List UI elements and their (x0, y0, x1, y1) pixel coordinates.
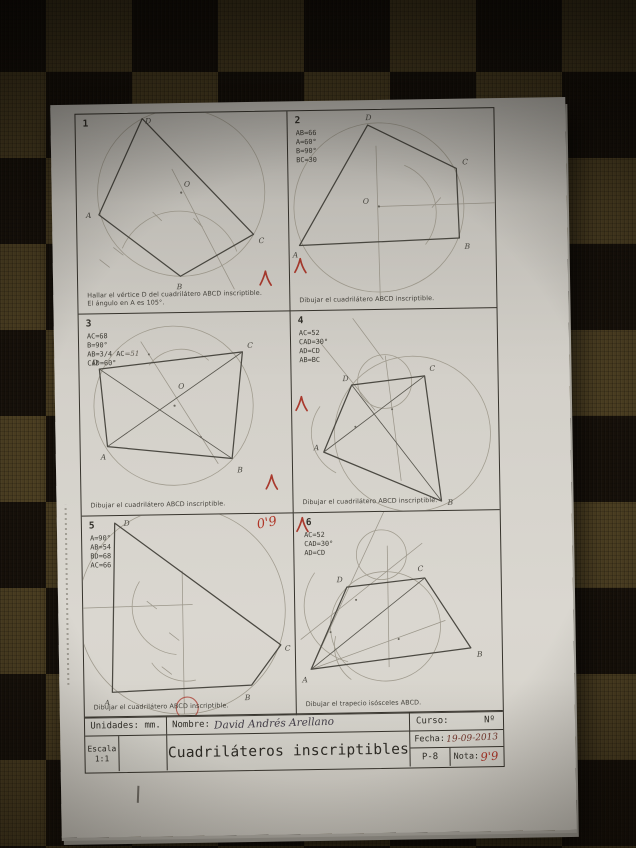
name-cell: Nombre: David Andrés Arellano (167, 713, 410, 735)
panel-instruction: Hallar el vértice D del cuadrilátero ABC… (87, 288, 285, 308)
vertex-label-D: D (336, 575, 343, 584)
vertex-label-C: C (259, 236, 265, 245)
vertex-label-D: D (123, 519, 130, 528)
panel-number: 2 (294, 115, 300, 126)
center-label-O: O (184, 180, 190, 189)
photo-of-worksheet: { "colors":{"paper":"#d6d3cc","ink":"#33… (0, 0, 636, 848)
exercise-panel-2: 2 AB=66 A=60° B=90° BC=30 D A (287, 108, 496, 311)
vertex-label-D: D (144, 116, 151, 125)
vertex-label-A: A (301, 675, 308, 684)
geometry-drawing-1: D A B C O (75, 111, 289, 313)
exercise-panel-1: 1 D A B C O Hallar el vértice D del cuad… (75, 111, 290, 314)
vertex-label-B: B (463, 242, 470, 251)
grade-check-mark (296, 516, 309, 533)
worksheet-paper: 1 D A B C O Hallar el vértice D del cuad… (50, 97, 576, 838)
student-name-handwriting: David Andrés Arellano (214, 716, 334, 732)
center-label-O: O (363, 197, 369, 206)
vertex-label-A: A (100, 453, 107, 462)
vertex-label-C: C (247, 341, 253, 350)
grade-handwriting: 9'9 (480, 749, 499, 764)
grade-check-mark (295, 395, 308, 412)
panel-given-data: A=90° AB=54 BD=68 AC=66 (90, 534, 111, 570)
drawing-frame: 1 D A B C O Hallar el vértice D del cuad… (74, 107, 504, 774)
panel-given-data: AC=52 CAD=30° AD=CD AB=BC (299, 329, 329, 365)
vertex-label-B: B (236, 465, 243, 474)
panel-number: 3 (86, 318, 92, 329)
handwritten-correction: =51 (124, 350, 139, 358)
vertex-label-A: A (313, 443, 320, 452)
grade-label: Nota: (453, 751, 479, 761)
geometry-drawing-5: D A B C (82, 513, 296, 717)
grade-check-mark (294, 257, 307, 274)
number-label: Nº (484, 715, 495, 725)
sheet-title: Cuadriláteros inscriptibles (167, 732, 411, 771)
exercise-panel-5: 5 A=90° AB=54 BD=68 AC=66 D (82, 513, 297, 718)
name-label: Nombre: (172, 720, 210, 731)
margin-fine-print (65, 505, 70, 685)
units-cell: Unidades: mm. (85, 716, 167, 735)
date-label: Fecha: (414, 734, 445, 744)
stray-pencil-mark (137, 786, 139, 803)
vertex-label-C: C (429, 364, 435, 373)
course-cell: Curso: Nº (410, 711, 503, 730)
exercise-panel-6: 6 AC=52 CAD=30° AD=CD (294, 510, 503, 715)
date-cell: Fecha: 19-09-2013 (410, 730, 503, 748)
vertex-label-C: C (285, 644, 291, 653)
course-label: Curso: (416, 716, 449, 727)
grade-check-mark (265, 474, 278, 491)
grade-cell: Nota: 9'9 (450, 747, 503, 766)
plate-number-cell: P-8 (410, 748, 450, 767)
panel-number: 1 (82, 118, 88, 129)
vertex-label-B: B (476, 650, 483, 659)
title-block: Unidades: mm. Nombre: David Andrés Arell… (85, 710, 504, 773)
vertex-label-D: D (342, 374, 349, 383)
date-handwriting: 19-09-2013 (446, 732, 498, 745)
exercise-panel-3: 3 AC=68 B=90° AB=3/4 AC=51 CAD=60° D (79, 311, 294, 516)
panel-given-data: AC=68 B=90° AB=3/4 AC=51 CAD=60° (87, 332, 140, 369)
grade-check-mark (259, 270, 272, 287)
panel-number: 5 (89, 520, 95, 531)
exercise-grid: 1 D A B C O Hallar el vértice D del cuad… (75, 108, 502, 718)
vertex-label-D: D (364, 113, 371, 122)
vertex-label-A: A (85, 211, 92, 220)
scale-cell: Escala 1:1 (85, 736, 120, 772)
panel-given-data: AC=52 CAD=30° AD=CD (304, 531, 333, 558)
vertex-label-C: C (418, 564, 424, 573)
panel-number: 4 (298, 315, 304, 326)
vertex-label-C: C (462, 157, 468, 166)
geometry-drawing-2: D A B C O (287, 108, 496, 310)
exercise-panel-4: 4 AC=52 CAD=30° AD=CD AB=BC (291, 308, 500, 513)
center-label-O: O (178, 382, 184, 391)
panel-given-data: AB=66 A=60° B=90° BC=30 (296, 129, 317, 165)
empty-cell (119, 735, 168, 771)
